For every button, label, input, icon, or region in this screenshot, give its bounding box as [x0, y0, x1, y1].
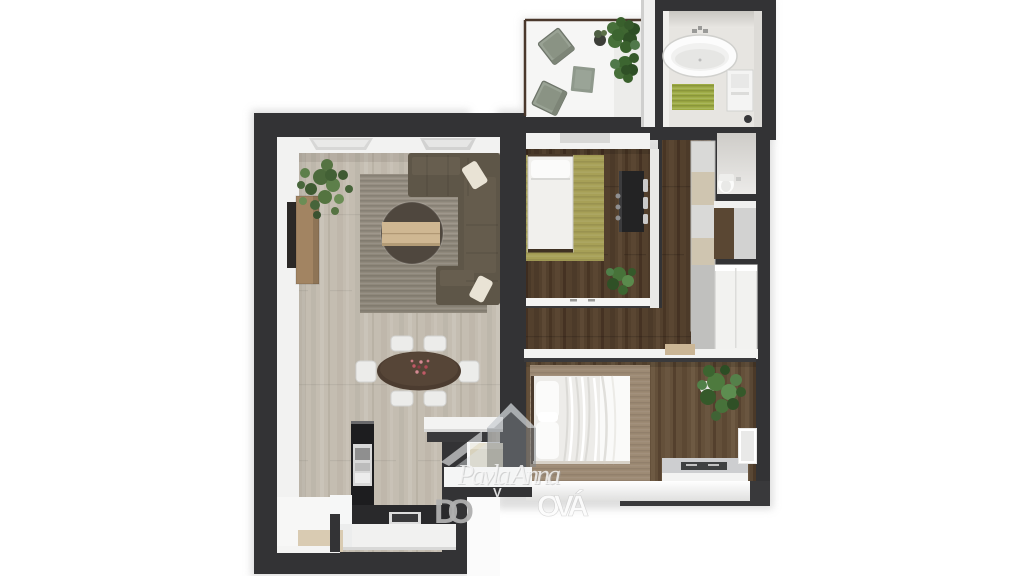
- svg-text:DO: DO: [434, 493, 474, 531]
- svg-text:Pavla Anna: Pavla Anna: [456, 460, 561, 491]
- svg-text:OVÁ: OVÁ: [537, 489, 589, 523]
